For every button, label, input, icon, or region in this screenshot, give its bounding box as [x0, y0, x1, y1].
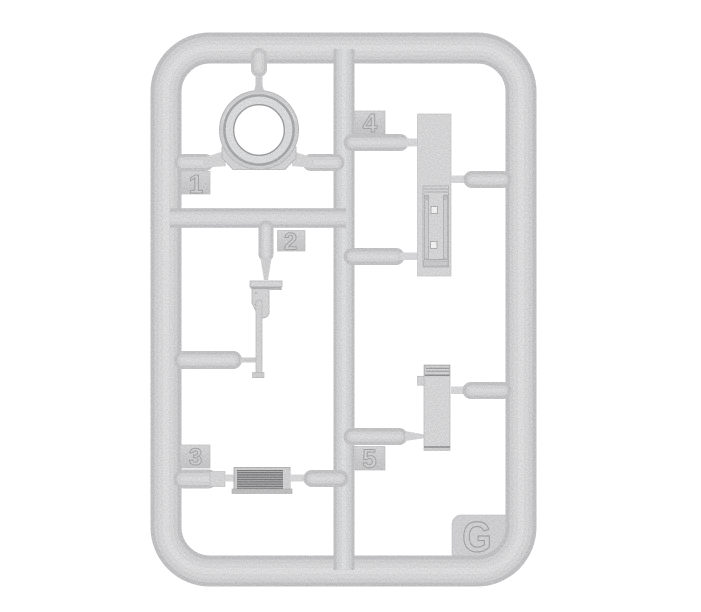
svg-text:3: 3: [189, 444, 202, 471]
svg-text:4: 4: [363, 108, 378, 138]
svg-text:2: 2: [284, 228, 297, 255]
svg-text:1: 1: [189, 169, 203, 199]
svg-text:5: 5: [362, 444, 376, 474]
